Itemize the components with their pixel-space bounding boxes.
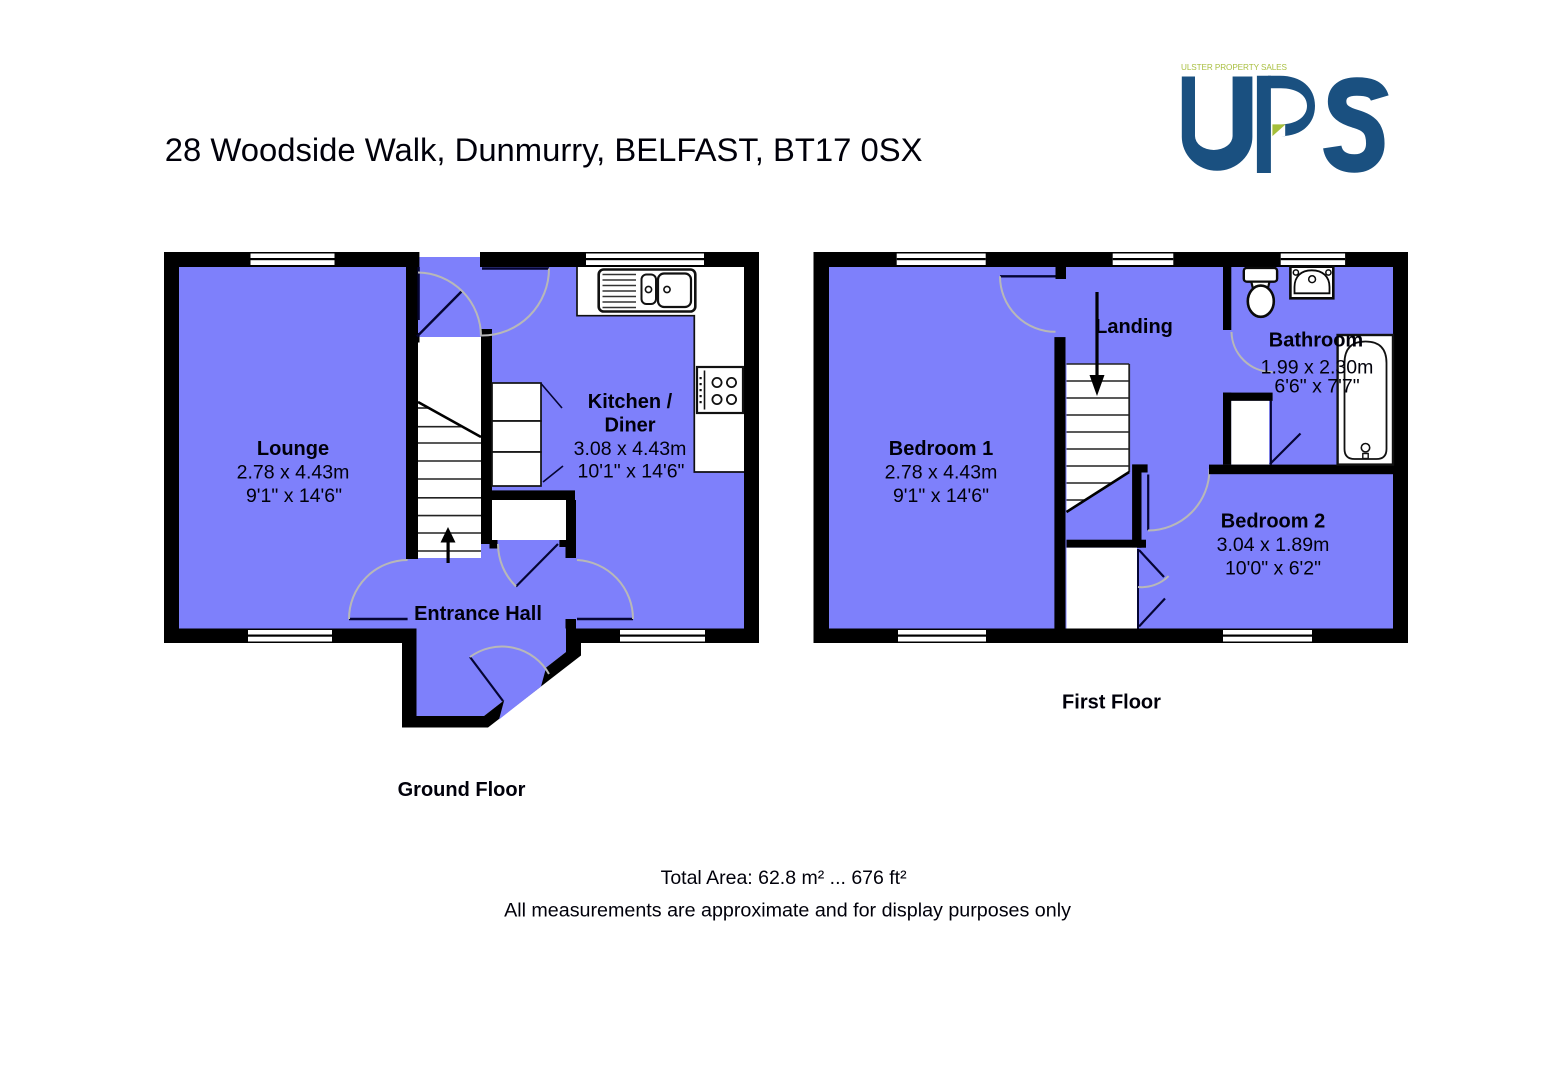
svg-text:3.08 x 4.43m: 3.08 x 4.43m bbox=[574, 438, 687, 460]
svg-text:Diner: Diner bbox=[604, 415, 655, 437]
svg-text:28 Woodside Walk, Dunmurry, BE: 28 Woodside Walk, Dunmurry, BELFAST, BT1… bbox=[165, 131, 923, 168]
svg-text:Entrance Hall: Entrance Hall bbox=[414, 603, 542, 625]
svg-text:Kitchen /: Kitchen / bbox=[588, 391, 673, 413]
svg-text:3.04 x 1.89m: 3.04 x 1.89m bbox=[1217, 534, 1330, 556]
svg-text:Bedroom 1: Bedroom 1 bbox=[889, 438, 993, 460]
svg-text:9'1" x 14'6": 9'1" x 14'6" bbox=[246, 485, 342, 507]
svg-text:First Floor: First Floor bbox=[1062, 692, 1161, 714]
svg-text:6'6" x 7'7": 6'6" x 7'7" bbox=[1274, 376, 1359, 398]
svg-text:10'1" x 14'6": 10'1" x 14'6" bbox=[578, 461, 685, 483]
svg-text:2.78 x 4.43m: 2.78 x 4.43m bbox=[885, 462, 998, 484]
svg-text:ULSTER PROPERTY SALES: ULSTER PROPERTY SALES bbox=[1181, 63, 1288, 72]
svg-text:All measurements are approxima: All measurements are approximate and for… bbox=[504, 900, 1071, 922]
svg-text:2.78 x 4.43m: 2.78 x 4.43m bbox=[237, 462, 350, 484]
svg-text:Landing: Landing bbox=[1095, 316, 1173, 338]
svg-text:Total Area: 62.8 m² ... 676 ft: Total Area: 62.8 m² ... 676 ft² bbox=[661, 867, 908, 889]
svg-text:10'0" x 6'2": 10'0" x 6'2" bbox=[1225, 557, 1321, 579]
svg-text:Lounge: Lounge bbox=[257, 438, 329, 460]
svg-text:Bathroom: Bathroom bbox=[1269, 330, 1363, 352]
svg-text:Bedroom 2: Bedroom 2 bbox=[1221, 511, 1325, 533]
svg-text:9'1" x 14'6": 9'1" x 14'6" bbox=[893, 485, 989, 507]
svg-text:Ground Floor: Ground Floor bbox=[398, 779, 526, 801]
